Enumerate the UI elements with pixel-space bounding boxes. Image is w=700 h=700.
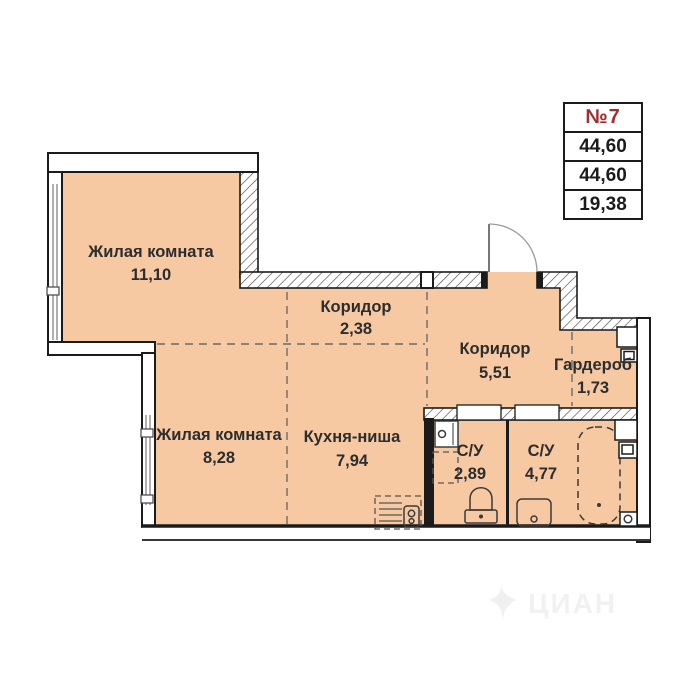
ventilation-shaft-icon — [622, 445, 633, 454]
room-name: Гардероб — [554, 356, 632, 374]
entrance-door-icon — [489, 224, 537, 272]
room-name: Жилая комната — [155, 426, 282, 444]
exterior-wall-left — [48, 172, 62, 353]
room-area: 8,28 — [203, 449, 235, 467]
room-name: Жилая комната — [87, 243, 214, 261]
interior-wall-hatched — [433, 272, 487, 288]
room-area: 1,73 — [577, 379, 609, 397]
room-name: Коридор — [459, 340, 530, 358]
unit-number: №7 — [565, 104, 641, 131]
unit-total-area: 44,60 — [565, 131, 641, 160]
unit-info-table: №7 44,60 44,60 19,38 — [563, 102, 643, 220]
drain-icon — [620, 512, 637, 526]
room-area: 4,77 — [525, 465, 557, 483]
room-name: С/У — [457, 442, 485, 460]
floorplan-page: Жилая комната 11,10 Коридор 2,38 Коридор… — [0, 0, 700, 700]
bathroom-door — [515, 405, 559, 420]
door-jamb — [537, 272, 543, 288]
room-area: 2,38 — [340, 320, 372, 338]
bathroom-door — [457, 405, 501, 420]
window-tick — [47, 287, 59, 295]
window-tick — [141, 429, 153, 437]
room-name: Кухня-ниша — [304, 428, 402, 446]
room-area: 7,94 — [336, 452, 369, 470]
room-name: С/У — [528, 442, 556, 460]
partition-wall — [506, 420, 509, 527]
door-jamb — [481, 272, 487, 288]
unit-living-area: 19,38 — [565, 189, 641, 218]
bathtub-drain — [597, 503, 601, 507]
room-area: 2,89 — [454, 465, 486, 483]
unit-area: 44,60 — [565, 160, 641, 189]
interior-wall-hatched — [240, 172, 258, 278]
floor-area-threshold — [487, 272, 537, 288]
door-swing-arc — [489, 224, 537, 272]
room-area: 11,10 — [131, 266, 171, 284]
exterior-wall-right — [637, 318, 650, 542]
washing-machine-icon — [435, 421, 458, 447]
ventilation-shaft-icon — [615, 420, 637, 440]
watermark-text: ЦИАН — [528, 588, 617, 620]
room-name: Коридор — [320, 298, 391, 316]
window-tick — [141, 495, 153, 503]
exterior-wall-top — [48, 153, 258, 172]
interior-wall-hatched — [240, 272, 421, 288]
exterior-wall-step — [48, 342, 155, 355]
room-area: 5,51 — [479, 364, 511, 382]
watermark-logo-icon — [486, 584, 520, 624]
ventilation-shaft-icon — [617, 327, 637, 347]
wall-pillar — [421, 272, 433, 288]
watermark: ЦИАН — [486, 584, 617, 624]
